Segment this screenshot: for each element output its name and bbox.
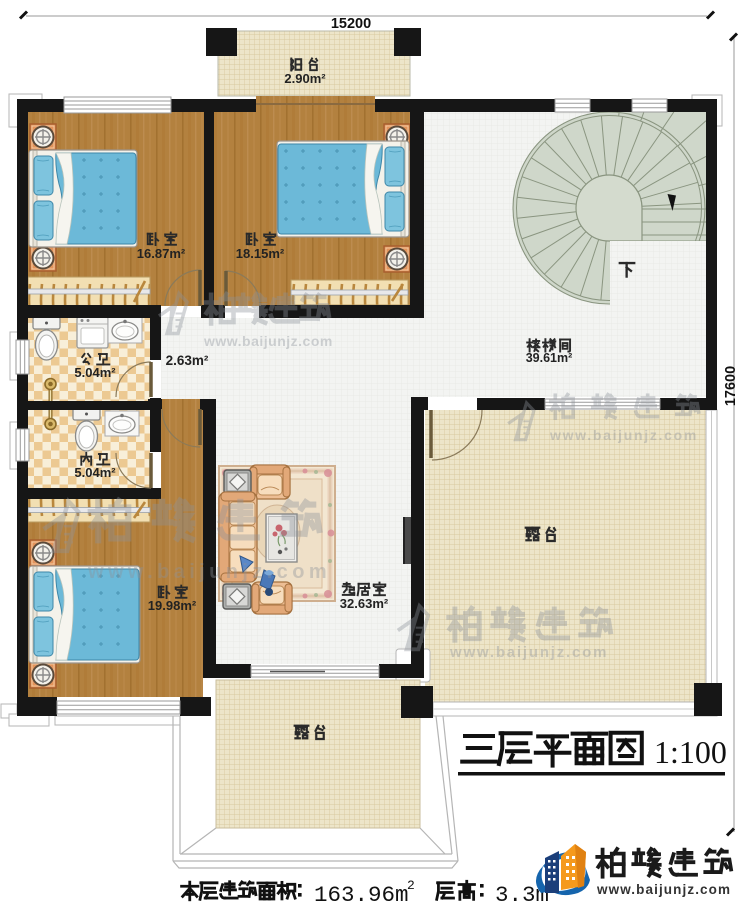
svg-text:www.baijunjz.com: www.baijunjz.com <box>203 333 333 349</box>
svg-text:16.87m²: 16.87m² <box>137 246 186 261</box>
svg-text:www.baijunjz.com: www.baijunjz.com <box>449 644 608 661</box>
svg-text:1:100: 1:100 <box>654 734 727 770</box>
svg-text:www.baijunjz.com: www.baijunjz.com <box>549 427 698 443</box>
svg-text:17600: 17600 <box>723 366 739 406</box>
svg-text:39.61m²: 39.61m² <box>526 351 573 365</box>
svg-text:18.15m²: 18.15m² <box>236 246 285 261</box>
svg-text:32.63m²: 32.63m² <box>340 596 389 611</box>
svg-text:2.90m²: 2.90m² <box>284 71 326 86</box>
svg-text:2.63m²: 2.63m² <box>166 353 209 368</box>
svg-text:www.baijunjz.com: www.baijunjz.com <box>87 561 331 583</box>
svg-text:5.04m²: 5.04m² <box>74 465 116 480</box>
svg-text:15200: 15200 <box>331 16 371 32</box>
svg-text:www.baijunjz.com: www.baijunjz.com <box>596 882 731 897</box>
svg-text:2: 2 <box>407 878 415 893</box>
svg-text:19.98m²: 19.98m² <box>148 598 197 613</box>
svg-text:5.04m²: 5.04m² <box>74 365 116 380</box>
svg-text:163.96m: 163.96m <box>314 882 409 908</box>
